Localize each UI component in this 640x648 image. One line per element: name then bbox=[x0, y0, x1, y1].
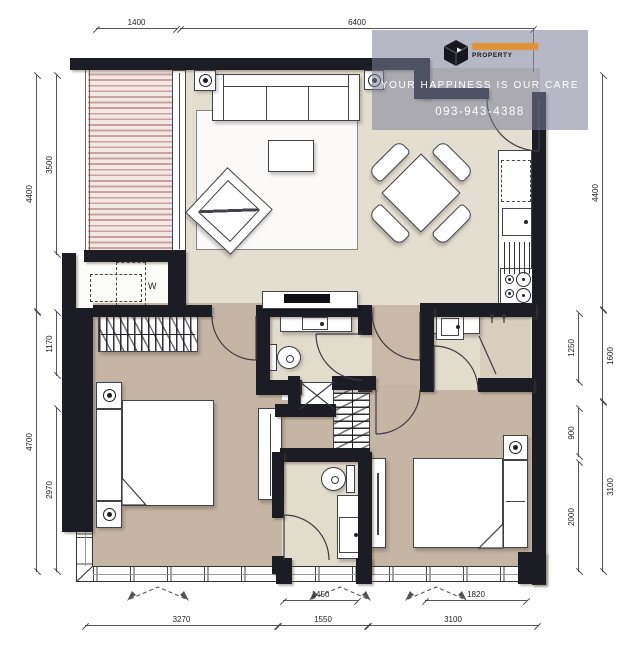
stove-burner bbox=[516, 272, 531, 287]
wall bbox=[518, 552, 546, 584]
sofa-cushion-divider bbox=[308, 87, 309, 121]
wall bbox=[356, 558, 372, 584]
window-corner bbox=[76, 566, 93, 582]
dim-right-4400: 4400 bbox=[602, 75, 603, 310]
nightstand-lamp bbox=[96, 501, 122, 528]
master-headboard bbox=[96, 409, 122, 501]
stove-burner bbox=[516, 288, 531, 303]
wall bbox=[168, 250, 186, 312]
shower-floor bbox=[480, 308, 530, 382]
dryer-outline bbox=[116, 262, 146, 306]
toilet bbox=[321, 467, 346, 491]
dim-left-3500: 3500 bbox=[56, 75, 57, 255]
dim-left-1170: 1170 bbox=[56, 312, 57, 376]
dim-left-2970: 2970 bbox=[56, 408, 57, 572]
stove-burner bbox=[505, 275, 514, 284]
window-left bbox=[76, 528, 93, 568]
wall bbox=[358, 452, 372, 573]
tv-line bbox=[377, 473, 379, 535]
brand-text-block: PROPERTY bbox=[472, 40, 538, 59]
dim-bottom-3270: 3270 bbox=[85, 625, 278, 626]
dim-bottom-1550: 1550 bbox=[278, 625, 368, 626]
bathroom3-basin bbox=[436, 313, 464, 340]
wall bbox=[532, 92, 546, 585]
wall bbox=[358, 305, 372, 335]
fridge bbox=[501, 160, 531, 202]
brand-label: PROPERTY bbox=[472, 52, 538, 59]
lamp-icon bbox=[199, 74, 212, 87]
lamp-icon bbox=[103, 508, 116, 521]
window-opening-arrows bbox=[130, 587, 464, 599]
stove-burner bbox=[505, 289, 514, 298]
watermark-tagline: YOUR HAPPINESS IS OUR CARE bbox=[372, 80, 588, 91]
toilet-tank bbox=[346, 465, 355, 493]
window-strip-bottom bbox=[93, 566, 518, 582]
wall bbox=[275, 404, 336, 417]
sliding-door-mullion bbox=[179, 73, 180, 249]
nightstand-lamp bbox=[503, 435, 528, 460]
lamp-icon bbox=[103, 389, 116, 402]
dim-top-1400: 1400 bbox=[96, 28, 177, 29]
balcony-floor bbox=[88, 68, 183, 252]
armchair-cushion bbox=[198, 180, 260, 242]
dim-left-4400: 4400 bbox=[36, 75, 37, 312]
kitchen-sink bbox=[502, 208, 532, 236]
nightstand-lamp bbox=[96, 382, 122, 409]
dim-left-4700: 4700 bbox=[36, 312, 37, 572]
sofa bbox=[212, 74, 360, 121]
dim-bottom-1820: 1820 bbox=[425, 600, 527, 601]
coffee-table bbox=[268, 140, 314, 172]
dim-right-1600: 1600 bbox=[602, 310, 603, 402]
drain-rack bbox=[504, 242, 530, 274]
dresser-line bbox=[270, 414, 271, 496]
tv bbox=[284, 294, 330, 303]
master-bed bbox=[122, 400, 214, 506]
dim-right-1250: 1250 bbox=[578, 313, 579, 383]
dim-top-6400: 6400 bbox=[180, 28, 534, 29]
wall bbox=[93, 305, 212, 317]
wall bbox=[62, 308, 93, 532]
dim-right-900: 900 bbox=[578, 408, 579, 457]
balcony-railing bbox=[85, 68, 90, 252]
wall bbox=[420, 303, 536, 317]
lamp-icon bbox=[509, 441, 522, 454]
dim-right-2000: 2000 bbox=[578, 462, 579, 572]
sofa-cushion-divider bbox=[266, 87, 267, 121]
sofa-back bbox=[224, 75, 348, 87]
wall-light bbox=[194, 70, 216, 91]
floor-plan: W bbox=[0, 0, 640, 648]
washer-label: W bbox=[148, 281, 157, 291]
toilet bbox=[277, 346, 301, 369]
dim-right-3100: 3100 bbox=[602, 402, 603, 572]
dim-bottom-1450: 1450 bbox=[283, 600, 358, 601]
brand-name-orange bbox=[472, 43, 538, 50]
sliding-glass-door bbox=[172, 70, 186, 252]
master-wardrobe bbox=[98, 315, 198, 352]
watermark-overlay: PROPERTY YOUR HAPPINESS IS OUR CARE 093-… bbox=[372, 30, 588, 130]
wall bbox=[84, 250, 170, 262]
watermark-phone: 093-943-4388 bbox=[372, 106, 588, 118]
wall bbox=[280, 448, 370, 462]
wall bbox=[332, 376, 376, 390]
bathroom1-sink bbox=[302, 317, 328, 330]
wall bbox=[272, 452, 284, 518]
wall bbox=[420, 306, 434, 392]
brand-row: PROPERTY bbox=[444, 40, 538, 66]
bedroom2-bed bbox=[413, 458, 503, 548]
basin-inner bbox=[441, 318, 459, 336]
wall bbox=[276, 558, 292, 584]
wall bbox=[62, 253, 76, 315]
brand-logo-cube-icon bbox=[444, 40, 468, 66]
sofa-arm-right bbox=[348, 75, 359, 120]
dim-bottom-3100: 3100 bbox=[368, 625, 538, 626]
headboard-divider bbox=[506, 501, 525, 502]
wall bbox=[478, 378, 534, 392]
wall bbox=[70, 58, 422, 70]
bedroom2-headboard bbox=[503, 460, 528, 548]
